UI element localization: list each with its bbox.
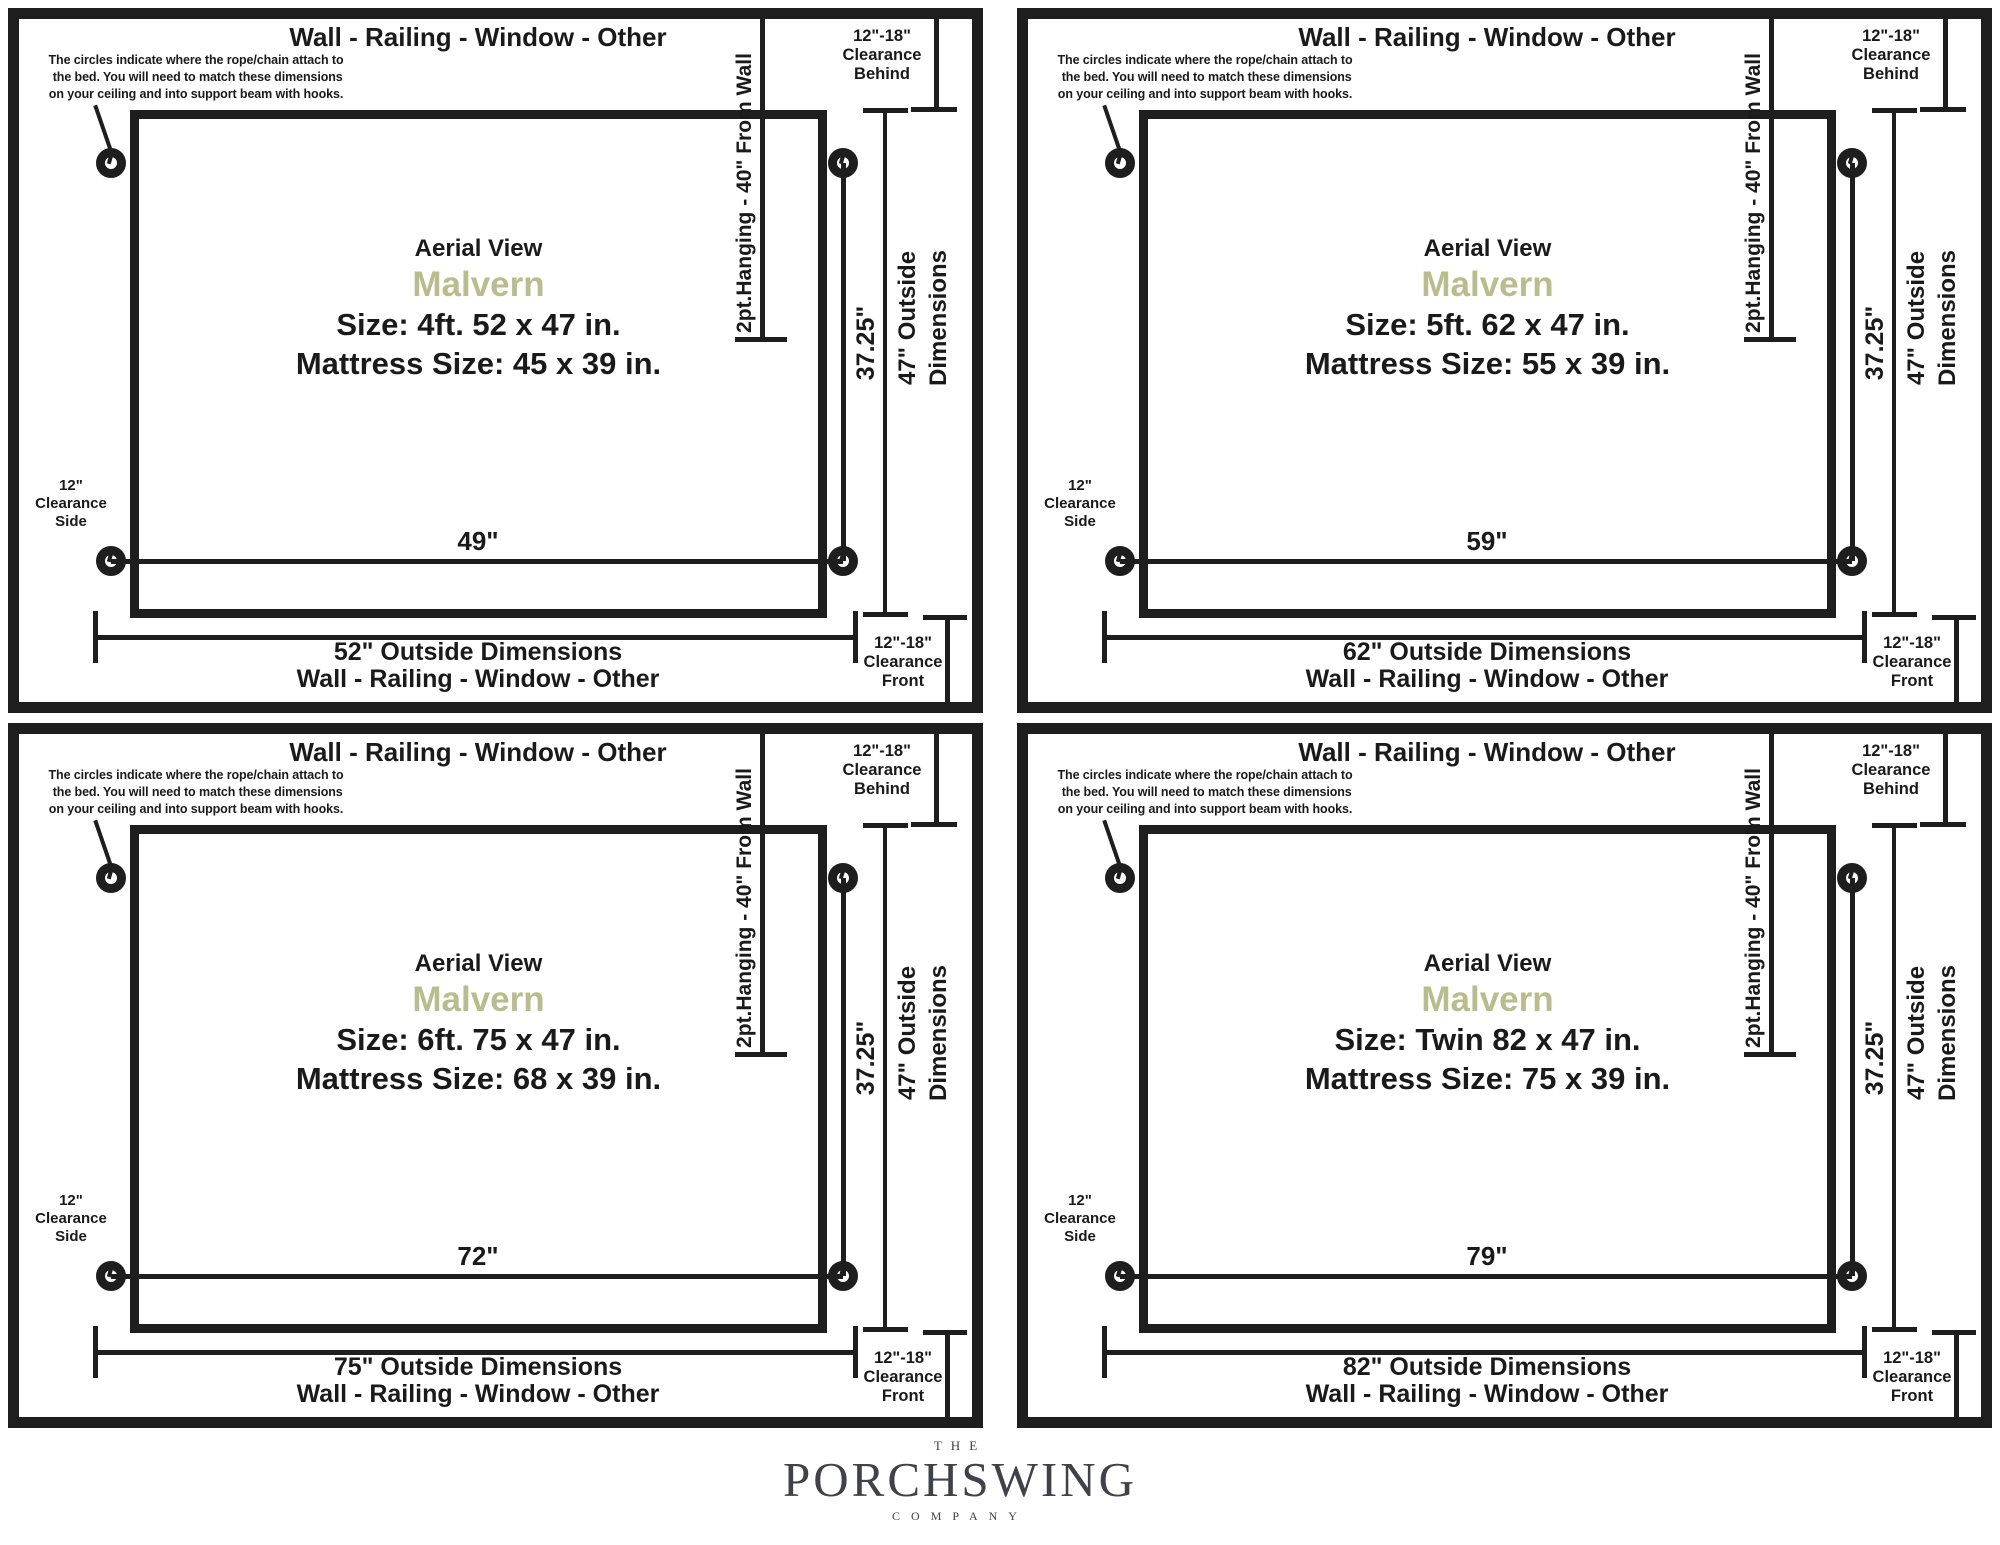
outside-width-label: 52" Outside Dimensions xyxy=(128,639,828,666)
eye-bolt-icon xyxy=(107,155,113,165)
eye-bolt-icon xyxy=(107,870,113,880)
outside-depth-tick-top xyxy=(1872,823,1917,828)
panel-twin: Wall - Railing - Window - Other The circ… xyxy=(1017,723,1992,1428)
wall-label-bottom: Wall - Railing - Window - Other xyxy=(1137,1381,1837,1408)
outside-width-label: 62" Outside Dimensions xyxy=(1137,639,1837,666)
outside-width-tick-left xyxy=(93,1326,98,1378)
product-name: Malvern xyxy=(1139,264,1836,305)
logo-company-text: COMPANY xyxy=(0,1509,1920,1524)
outside-width-caption: 82" Outside Dimensions Wall - Railing - … xyxy=(1137,1354,1837,1408)
outside-depth-tick-top xyxy=(863,823,908,828)
bed-center-text: Aerial View Malvern Size: Twin 82 x 47 i… xyxy=(1139,949,1836,1098)
attach-point-top-left-icon xyxy=(1105,148,1135,178)
mattress-size-label: Mattress Size: 75 x 39 in. xyxy=(1139,1059,1836,1098)
hanging-from-wall-line xyxy=(1769,19,1774,341)
clearance-front-label: 12"-18" Clearance Front xyxy=(1857,1349,1967,1406)
outside-depth-line xyxy=(1892,825,1896,1332)
panel-5ft: Wall - Railing - Window - Other The circ… xyxy=(1017,8,1992,713)
clearance-behind-line xyxy=(1943,734,1948,825)
outside-depth-tick-top xyxy=(863,108,908,113)
outside-width-tick-left xyxy=(1102,1326,1107,1378)
outside-depth-label: 47" Outside Dimensions xyxy=(1901,223,1963,413)
hanging-width-label: 79" xyxy=(1137,1241,1837,1272)
clearance-behind-line xyxy=(934,734,939,825)
hanging-width-label: 59" xyxy=(1137,526,1837,557)
company-logo: THE PORCHSWING COMPANY xyxy=(0,1438,1920,1524)
outside-width-label: 82" Outside Dimensions xyxy=(1137,1354,1837,1381)
wall-label-bottom: Wall - Railing - Window - Other xyxy=(128,1381,828,1408)
hanging-depth-label: 37.25" xyxy=(1860,281,1890,405)
rope-chain-note: The circles indicate where the rope/chai… xyxy=(14,767,378,818)
outside-depth-tick-top xyxy=(1872,108,1917,113)
attach-point-top-left-icon xyxy=(1105,863,1135,893)
rope-chain-note: The circles indicate where the rope/chai… xyxy=(14,52,378,103)
clearance-behind-label: 12"-18" Clearance Behind xyxy=(822,742,942,799)
outside-depth-label: 47" Outside Dimensions xyxy=(892,223,954,413)
outside-depth-label: 47" Outside Dimensions xyxy=(892,938,954,1128)
panel-6ft: Wall - Railing - Window - Other The circ… xyxy=(8,723,983,1428)
logo-name-text: PORCHSWING xyxy=(0,1454,1920,1506)
eye-bolt-icon xyxy=(1116,155,1122,165)
outside-width-caption: 75" Outside Dimensions Wall - Railing - … xyxy=(128,1354,828,1408)
eye-bolt-icon xyxy=(1116,870,1122,880)
clearance-behind-tick xyxy=(911,822,957,827)
clearance-behind-label: 12"-18" Clearance Behind xyxy=(1831,27,1951,84)
aerial-view-label: Aerial View xyxy=(130,234,827,264)
outside-width-label: 75" Outside Dimensions xyxy=(128,1354,828,1381)
bed-center-text: Aerial View Malvern Size: 4ft. 52 x 47 i… xyxy=(130,234,827,383)
hanging-from-wall-label: 2pt.Hanging - 40" From Wall xyxy=(1741,748,1767,1068)
outside-depth-tick-bottom xyxy=(863,612,908,617)
clearance-behind-label: 12"-18" Clearance Behind xyxy=(822,27,942,84)
hanging-depth-line xyxy=(1850,163,1855,561)
hanging-from-wall-line xyxy=(760,19,765,341)
clearance-behind-tick xyxy=(1920,107,1966,112)
rope-chain-note: The circles indicate where the rope/chai… xyxy=(1023,767,1387,818)
clearance-side-label: 12" Clearance Side xyxy=(1030,1192,1130,1246)
hanging-from-wall-label: 2pt.Hanging - 40" From Wall xyxy=(732,33,758,353)
size-label: Size: Twin 82 x 47 in. xyxy=(1139,1020,1836,1059)
hanging-depth-label: 37.25" xyxy=(851,281,881,405)
aerial-view-label: Aerial View xyxy=(1139,234,1836,264)
panel-4ft: Wall - Railing - Window - Other The circ… xyxy=(8,8,983,713)
wall-label-top: Wall - Railing - Window - Other xyxy=(128,737,828,768)
outside-width-tick-left xyxy=(1102,611,1107,663)
clearance-behind-line xyxy=(1943,19,1948,110)
hanging-from-wall-line xyxy=(1769,734,1774,1056)
aerial-view-label: Aerial View xyxy=(130,949,827,979)
outside-depth-line xyxy=(883,825,887,1332)
hanging-from-wall-label: 2pt.Hanging - 40" From Wall xyxy=(1741,33,1767,353)
hanging-width-line xyxy=(111,1274,843,1279)
clearance-side-label: 12" Clearance Side xyxy=(21,477,121,531)
hanging-depth-line xyxy=(841,163,846,561)
mattress-size-label: Mattress Size: 68 x 39 in. xyxy=(130,1059,827,1098)
clearance-front-label: 12"-18" Clearance Front xyxy=(848,634,958,691)
hanging-depth-line xyxy=(1850,878,1855,1276)
wall-label-bottom: Wall - Railing - Window - Other xyxy=(1137,666,1837,693)
attach-point-top-left-icon xyxy=(96,148,126,178)
clearance-side-label: 12" Clearance Side xyxy=(21,1192,121,1246)
hanging-depth-label: 37.25" xyxy=(1860,996,1890,1120)
outside-depth-label: 47" Outside Dimensions xyxy=(1901,938,1963,1128)
hanging-width-label: 72" xyxy=(128,1241,828,1272)
clearance-behind-tick xyxy=(1920,822,1966,827)
hanging-width-line xyxy=(1120,559,1852,564)
hanging-from-wall-label: 2pt.Hanging - 40" From Wall xyxy=(732,748,758,1068)
mattress-size-label: Mattress Size: 45 x 39 in. xyxy=(130,344,827,383)
product-name: Malvern xyxy=(130,264,827,305)
clearance-behind-tick xyxy=(911,107,957,112)
outside-depth-tick-bottom xyxy=(863,1327,908,1332)
hanging-width-line xyxy=(1120,1274,1852,1279)
product-name: Malvern xyxy=(130,979,827,1020)
hanging-width-line xyxy=(111,559,843,564)
outside-width-tick-left xyxy=(93,611,98,663)
bed-center-text: Aerial View Malvern Size: 6ft. 75 x 47 i… xyxy=(130,949,827,1098)
clearance-front-label: 12"-18" Clearance Front xyxy=(1857,634,1967,691)
size-label: Size: 4ft. 52 x 47 in. xyxy=(130,305,827,344)
outside-depth-tick-bottom xyxy=(1872,1327,1917,1332)
rope-chain-note: The circles indicate where the rope/chai… xyxy=(1023,52,1387,103)
hanging-depth-line xyxy=(841,878,846,1276)
wall-label-bottom: Wall - Railing - Window - Other xyxy=(128,666,828,693)
hanging-depth-label: 37.25" xyxy=(851,996,881,1120)
clearance-front-label: 12"-18" Clearance Front xyxy=(848,1349,958,1406)
clearance-behind-label: 12"-18" Clearance Behind xyxy=(1831,742,1951,799)
clearance-behind-line xyxy=(934,19,939,110)
clearance-side-label: 12" Clearance Side xyxy=(1030,477,1130,531)
outside-depth-tick-bottom xyxy=(1872,612,1917,617)
size-label: Size: 6ft. 75 x 47 in. xyxy=(130,1020,827,1059)
outside-depth-line xyxy=(883,110,887,617)
wall-label-top: Wall - Railing - Window - Other xyxy=(1137,737,1837,768)
size-label: Size: 5ft. 62 x 47 in. xyxy=(1139,305,1836,344)
product-name: Malvern xyxy=(1139,979,1836,1020)
wall-label-top: Wall - Railing - Window - Other xyxy=(128,22,828,53)
bed-center-text: Aerial View Malvern Size: 5ft. 62 x 47 i… xyxy=(1139,234,1836,383)
aerial-view-label: Aerial View xyxy=(1139,949,1836,979)
outside-depth-line xyxy=(1892,110,1896,617)
outside-width-caption: 62" Outside Dimensions Wall - Railing - … xyxy=(1137,639,1837,693)
attach-point-top-left-icon xyxy=(96,863,126,893)
outside-width-caption: 52" Outside Dimensions Wall - Railing - … xyxy=(128,639,828,693)
mattress-size-label: Mattress Size: 55 x 39 in. xyxy=(1139,344,1836,383)
wall-label-top: Wall - Railing - Window - Other xyxy=(1137,22,1837,53)
hanging-from-wall-line xyxy=(760,734,765,1056)
hanging-width-label: 49" xyxy=(128,526,828,557)
